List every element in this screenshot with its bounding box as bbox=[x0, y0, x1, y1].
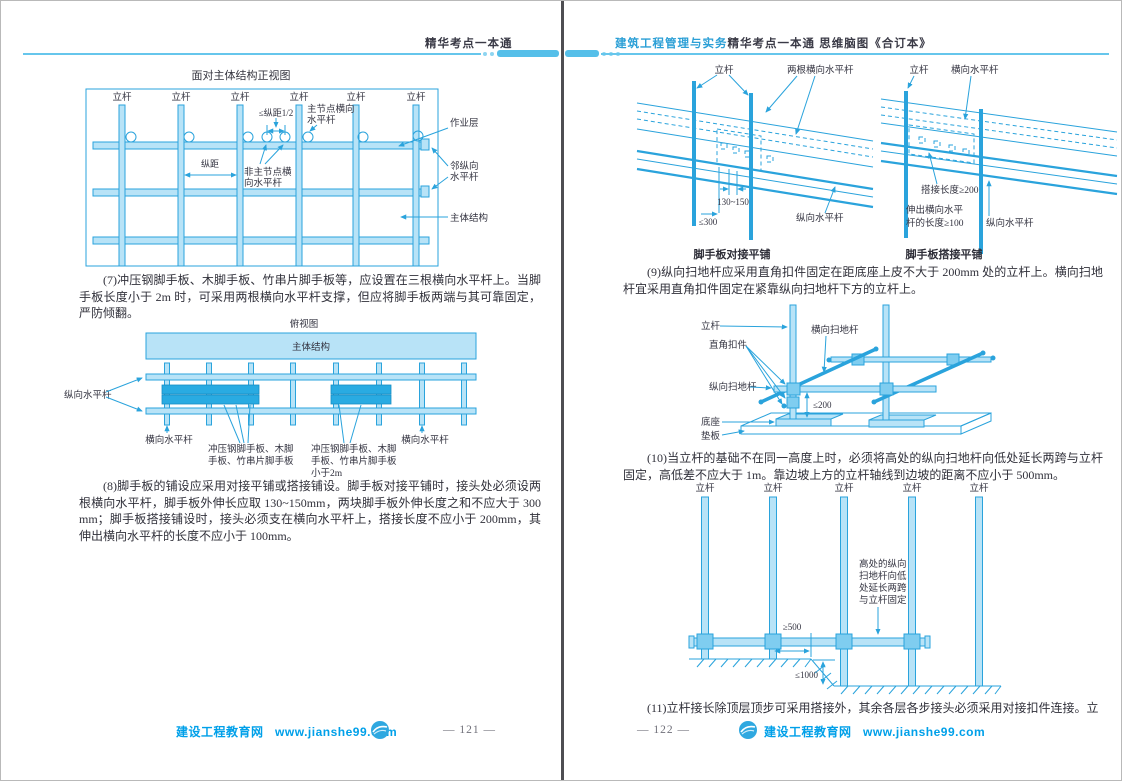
fig-lap-joint: 立杆 横向水平杆 搭接长度≥200 伸出横向水平 杆的长度≥100 纵向水平杆 … bbox=[879, 63, 1122, 263]
pole-label: 立杆 bbox=[969, 482, 989, 494]
longitudinal-sweep-label-group: 纵向扫地杆 bbox=[709, 381, 771, 393]
base-label: 底座 bbox=[701, 416, 721, 428]
work-layer-label-group: 作业层 bbox=[399, 117, 479, 146]
adjacent-ledger-label: 水平杆 bbox=[450, 171, 479, 183]
coupler-label-group: 直角扣件 bbox=[709, 339, 785, 404]
plank-band bbox=[881, 99, 1117, 194]
pad-label: 垫板 bbox=[701, 430, 721, 442]
dim-ge-500: ≥500 bbox=[783, 622, 802, 632]
fig-butt-caption: 脚手板对接平铺 bbox=[694, 247, 771, 261]
span-half-dimension: ≤纵距1/2 bbox=[259, 108, 293, 135]
note-line: 高处的纵向 bbox=[859, 558, 907, 570]
dim-le-200: ≤200 bbox=[813, 400, 832, 410]
extension-length-label: 杆的长度≥100 bbox=[906, 217, 964, 229]
adjacent-ledger-label: 邻纵向 bbox=[450, 160, 479, 172]
pole-label-group: 立杆 bbox=[701, 320, 787, 332]
right-angle-coupler-label: 直角扣件 bbox=[709, 339, 748, 351]
pole-label: 立杆 bbox=[909, 64, 929, 76]
board-short-label: 冲压钢脚手板、木脚 bbox=[311, 443, 397, 455]
fig-lap-caption: 脚手板搭接平铺 bbox=[906, 247, 983, 261]
globe-icon bbox=[370, 720, 390, 740]
transverse-bar-label: 横向水平杆 bbox=[951, 64, 999, 76]
transverse-bar-label: 横向水平杆 bbox=[401, 434, 449, 446]
longitudinal-label-group: 纵向水平杆 bbox=[986, 181, 1034, 229]
fig-front-view: 立杆 立杆 立杆 立杆 立杆 立杆 ≤纵距1/2 主节点横向 水平杆 作业层 纵… bbox=[79, 85, 529, 270]
transverse-left-label-group: 横向水平杆 bbox=[145, 426, 193, 446]
site-name: 建设工程教育网 bbox=[764, 725, 852, 739]
pole-label-group: 立杆 bbox=[697, 64, 748, 95]
main-node-bar-label: 主节点横向 bbox=[307, 103, 355, 115]
longitudinal-label-group: 纵向水平杆 bbox=[64, 378, 142, 411]
right-header-title-practice: 建筑工程管理与实务 bbox=[615, 38, 728, 50]
pole-label: 立杆 bbox=[406, 91, 426, 103]
right-header-title-core: 精华考点一本通 bbox=[728, 38, 816, 50]
note-line: 处延长两跨 bbox=[859, 582, 907, 594]
transverse-right-label-group: 横向水平杆 bbox=[401, 426, 449, 446]
board-short-label: 手板、竹串片脚手板 bbox=[311, 455, 397, 467]
left-header-bar bbox=[497, 50, 559, 57]
fig-stepped-ground: 立杆 立杆 立杆 立杆 立杆 bbox=[639, 481, 1111, 699]
note-label-group: 高处的纵向 扫地杆向低 处延长两跨 与立杆固定 bbox=[859, 558, 907, 634]
board-short-label-group: 冲压钢脚手板、木脚 手板、竹串片脚手板 小于2m bbox=[311, 405, 397, 479]
longitudinal-bar-label: 纵向水平杆 bbox=[796, 212, 844, 224]
transverse-label-group: 横向水平杆 bbox=[951, 64, 999, 119]
transverse-bar-label: 横向水平杆 bbox=[145, 434, 193, 446]
two-transverse-bars-label: 两根横向水平杆 bbox=[787, 64, 854, 76]
span-half-label: ≤纵距1/2 bbox=[259, 108, 293, 118]
base-plates bbox=[776, 414, 936, 427]
fig-top-view: 俯视图 主体结构 纵向水平杆 横向水平杆 bbox=[56, 317, 506, 485]
page-divider bbox=[561, 1, 564, 781]
work-layer-label: 作业层 bbox=[450, 117, 479, 129]
pole-label: 立杆 bbox=[763, 482, 783, 494]
fig-top-title: 俯视图 bbox=[290, 318, 319, 330]
right-page-number: — 122 — bbox=[637, 724, 690, 736]
pole-label: 立杆 bbox=[171, 91, 191, 103]
book-spread: 精华考点一本通 面对主体结构正视图 bbox=[0, 0, 1122, 781]
fig-butt-joint: 立杆 两根横向水平杆 130~150 ≤300 纵向水平杆 脚手板对接平铺 bbox=[629, 63, 881, 263]
extension-length-label: 伸出横向水平 bbox=[906, 204, 964, 216]
pole-label: 立杆 bbox=[695, 482, 715, 494]
span-label: 纵距 bbox=[201, 159, 219, 169]
main-node-label-group: 主节点横向 水平杆 bbox=[307, 103, 355, 131]
right-header-title: 建筑工程管理与实务精华考点一本通 思维脑图《合订本》 bbox=[615, 35, 932, 51]
left-footer-site: 建设工程教育网 www.jianshe99.com bbox=[176, 723, 397, 740]
ledger-end-cap bbox=[421, 139, 429, 150]
right-footer-site: 建设工程教育网 www.jianshe99.com bbox=[764, 723, 985, 740]
main-structure-label: 主体结构 bbox=[450, 212, 488, 224]
left-page-number: — 121 — bbox=[443, 724, 496, 736]
fig-sweep-bars: ≤200 立杆 横向扫地杆 直角扣件 纵向扫地杆 底座 垫板 bbox=[684, 301, 1109, 451]
pole-label: 立杆 bbox=[112, 91, 132, 103]
paragraph-8: (8)脚手板的铺设应采用对接平铺或搭接铺设。脚手板对接平铺时，接头处必须设两根横… bbox=[79, 478, 541, 544]
two-bars-label-group: 两根横向水平杆 bbox=[766, 64, 854, 134]
horizontal-ledgers bbox=[93, 139, 429, 244]
pole-label: 立杆 bbox=[701, 320, 721, 332]
non-main-node-label: 非主节点横 bbox=[244, 166, 292, 178]
dim-le-1000: ≤1000 bbox=[795, 670, 818, 680]
longitudinal-bar-label: 纵向水平杆 bbox=[64, 389, 112, 401]
right-header-bar bbox=[565, 50, 599, 57]
site-name: 建设工程教育网 bbox=[176, 725, 264, 739]
non-main-node-label: 向水平杆 bbox=[244, 177, 283, 189]
longitudinal-bar-label: 纵向水平杆 bbox=[986, 217, 1034, 229]
left-header-title: 精华考点一本通 bbox=[425, 35, 513, 51]
joint-coupler-marks bbox=[721, 143, 773, 162]
main-node-bar-label: 水平杆 bbox=[307, 114, 336, 126]
pole-label-group: 立杆 bbox=[908, 64, 929, 88]
pole-label: 立杆 bbox=[230, 91, 250, 103]
pad-label-group: 垫板 bbox=[701, 430, 744, 442]
standing-poles bbox=[702, 497, 983, 686]
board-label: 手板、竹串片脚手板 bbox=[208, 455, 294, 467]
pole-label: 立杆 bbox=[834, 482, 854, 494]
dim-le-300: ≤300 bbox=[699, 217, 718, 227]
adjacent-ledger-label-group: 邻纵向 水平杆 bbox=[432, 148, 479, 189]
transverse-sweep-label: 横向扫地杆 bbox=[811, 324, 859, 336]
fig-front-title: 面对主体结构正视图 bbox=[151, 67, 331, 83]
longitudinal-sweep-label: 纵向扫地杆 bbox=[709, 381, 757, 393]
paragraph-9: (9)纵向扫地杆应采用直角扣件固定在距底座上皮不大于 200mm 处的立杆上。横… bbox=[623, 264, 1103, 297]
left-header-rule bbox=[23, 53, 481, 55]
note-line: 与立杆固定 bbox=[859, 594, 907, 606]
pole-label: 立杆 bbox=[346, 91, 366, 103]
lap-length-label: 搭接长度≥200 bbox=[921, 184, 979, 196]
main-structure-label: 主体结构 bbox=[292, 341, 330, 353]
extension-label-group: 伸出横向水平 杆的长度≥100 bbox=[906, 204, 964, 229]
paragraph-10: (10)当立杆的基础不在同一高度上时，必须将高处的纵向扫地杆向低处延长两跨与立杆… bbox=[623, 450, 1103, 483]
right-header-rule bbox=[601, 53, 1109, 55]
pole-label: 立杆 bbox=[289, 91, 309, 103]
pole-label: 立杆 bbox=[902, 482, 922, 494]
pole-labels: 立杆 立杆 立杆 立杆 立杆 立杆 bbox=[112, 91, 426, 103]
joint-outline bbox=[909, 125, 974, 163]
non-main-node-label-group: 非主节点横 向水平杆 bbox=[244, 145, 292, 189]
paragraph-11: (11)立杆接长除顶层顶步可采用搭接外，其余各层各步接头必须采用对接扣件连接。立 bbox=[623, 700, 1103, 717]
board-label: 冲压钢脚手板、木脚 bbox=[208, 443, 294, 455]
note-line: 扫地杆向低 bbox=[859, 570, 907, 582]
dim-130-150: 130~150 bbox=[717, 197, 749, 207]
pole-label: 立杆 bbox=[714, 64, 734, 76]
right-header-title-map: 思维脑图《合订本》 bbox=[819, 38, 932, 50]
ledger-end-cap bbox=[421, 186, 429, 197]
paragraph-7: (7)冲压钢脚手板、木脚手板、竹串片脚手板等，应设置在三根横向水平杆上。当脚手板… bbox=[79, 272, 541, 322]
plank-band bbox=[637, 103, 873, 207]
scaffold-boards bbox=[162, 385, 391, 404]
span-dimension: 纵距 bbox=[185, 159, 236, 175]
pole-labels: 立杆 立杆 立杆 立杆 立杆 bbox=[695, 482, 989, 494]
longitudinal-label-group: 纵向水平杆 bbox=[796, 187, 844, 224]
coupler-circles bbox=[126, 131, 423, 142]
site-url: www.jianshe99.com bbox=[863, 725, 985, 739]
front-longitudinal-sweep-bar bbox=[774, 383, 936, 409]
sweep-bar bbox=[689, 634, 930, 649]
globe-icon bbox=[738, 720, 758, 740]
